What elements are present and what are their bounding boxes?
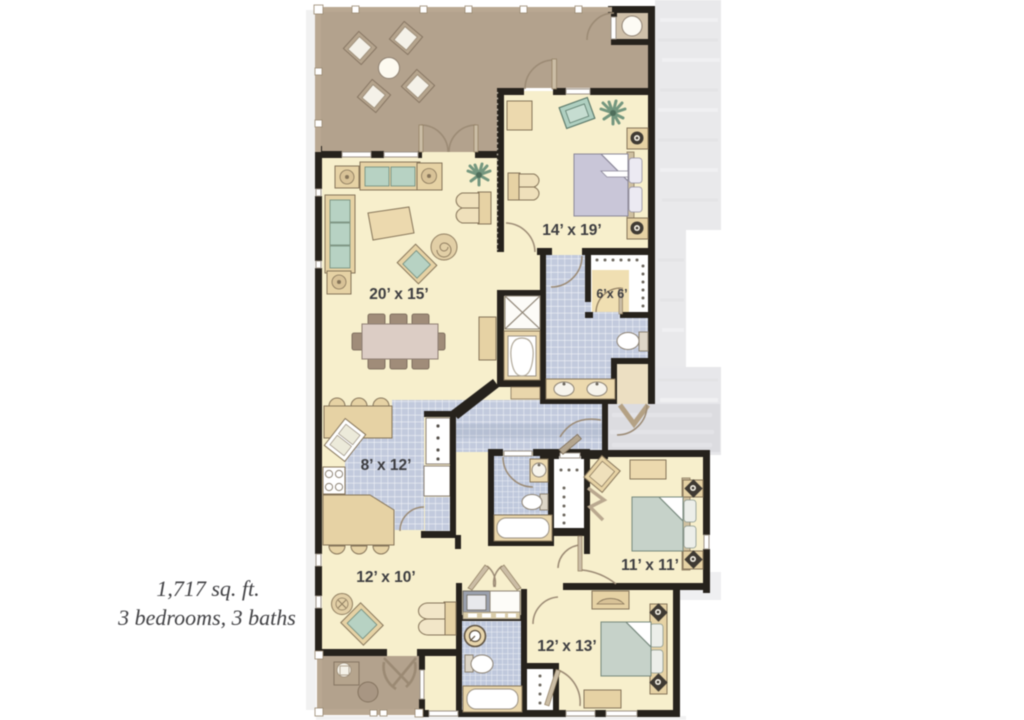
svg-text:8’ x 12’: 8’ x 12’ xyxy=(361,457,412,474)
svg-text:20’ x 15’: 20’ x 15’ xyxy=(369,286,428,303)
svg-text:12’ x 13’: 12’ x 13’ xyxy=(537,638,596,655)
svg-text:1,717 sq. ft.: 1,717 sq. ft. xyxy=(156,576,259,601)
svg-text:14’ x 19’: 14’ x 19’ xyxy=(542,222,601,239)
svg-text:3 bedrooms, 3 baths: 3 bedrooms, 3 baths xyxy=(117,605,296,630)
svg-text:6’x 6’: 6’x 6’ xyxy=(596,287,627,301)
svg-text:12’ x 10’: 12’ x 10’ xyxy=(356,569,415,586)
svg-text:11’ x 11’: 11’ x 11’ xyxy=(621,557,679,574)
